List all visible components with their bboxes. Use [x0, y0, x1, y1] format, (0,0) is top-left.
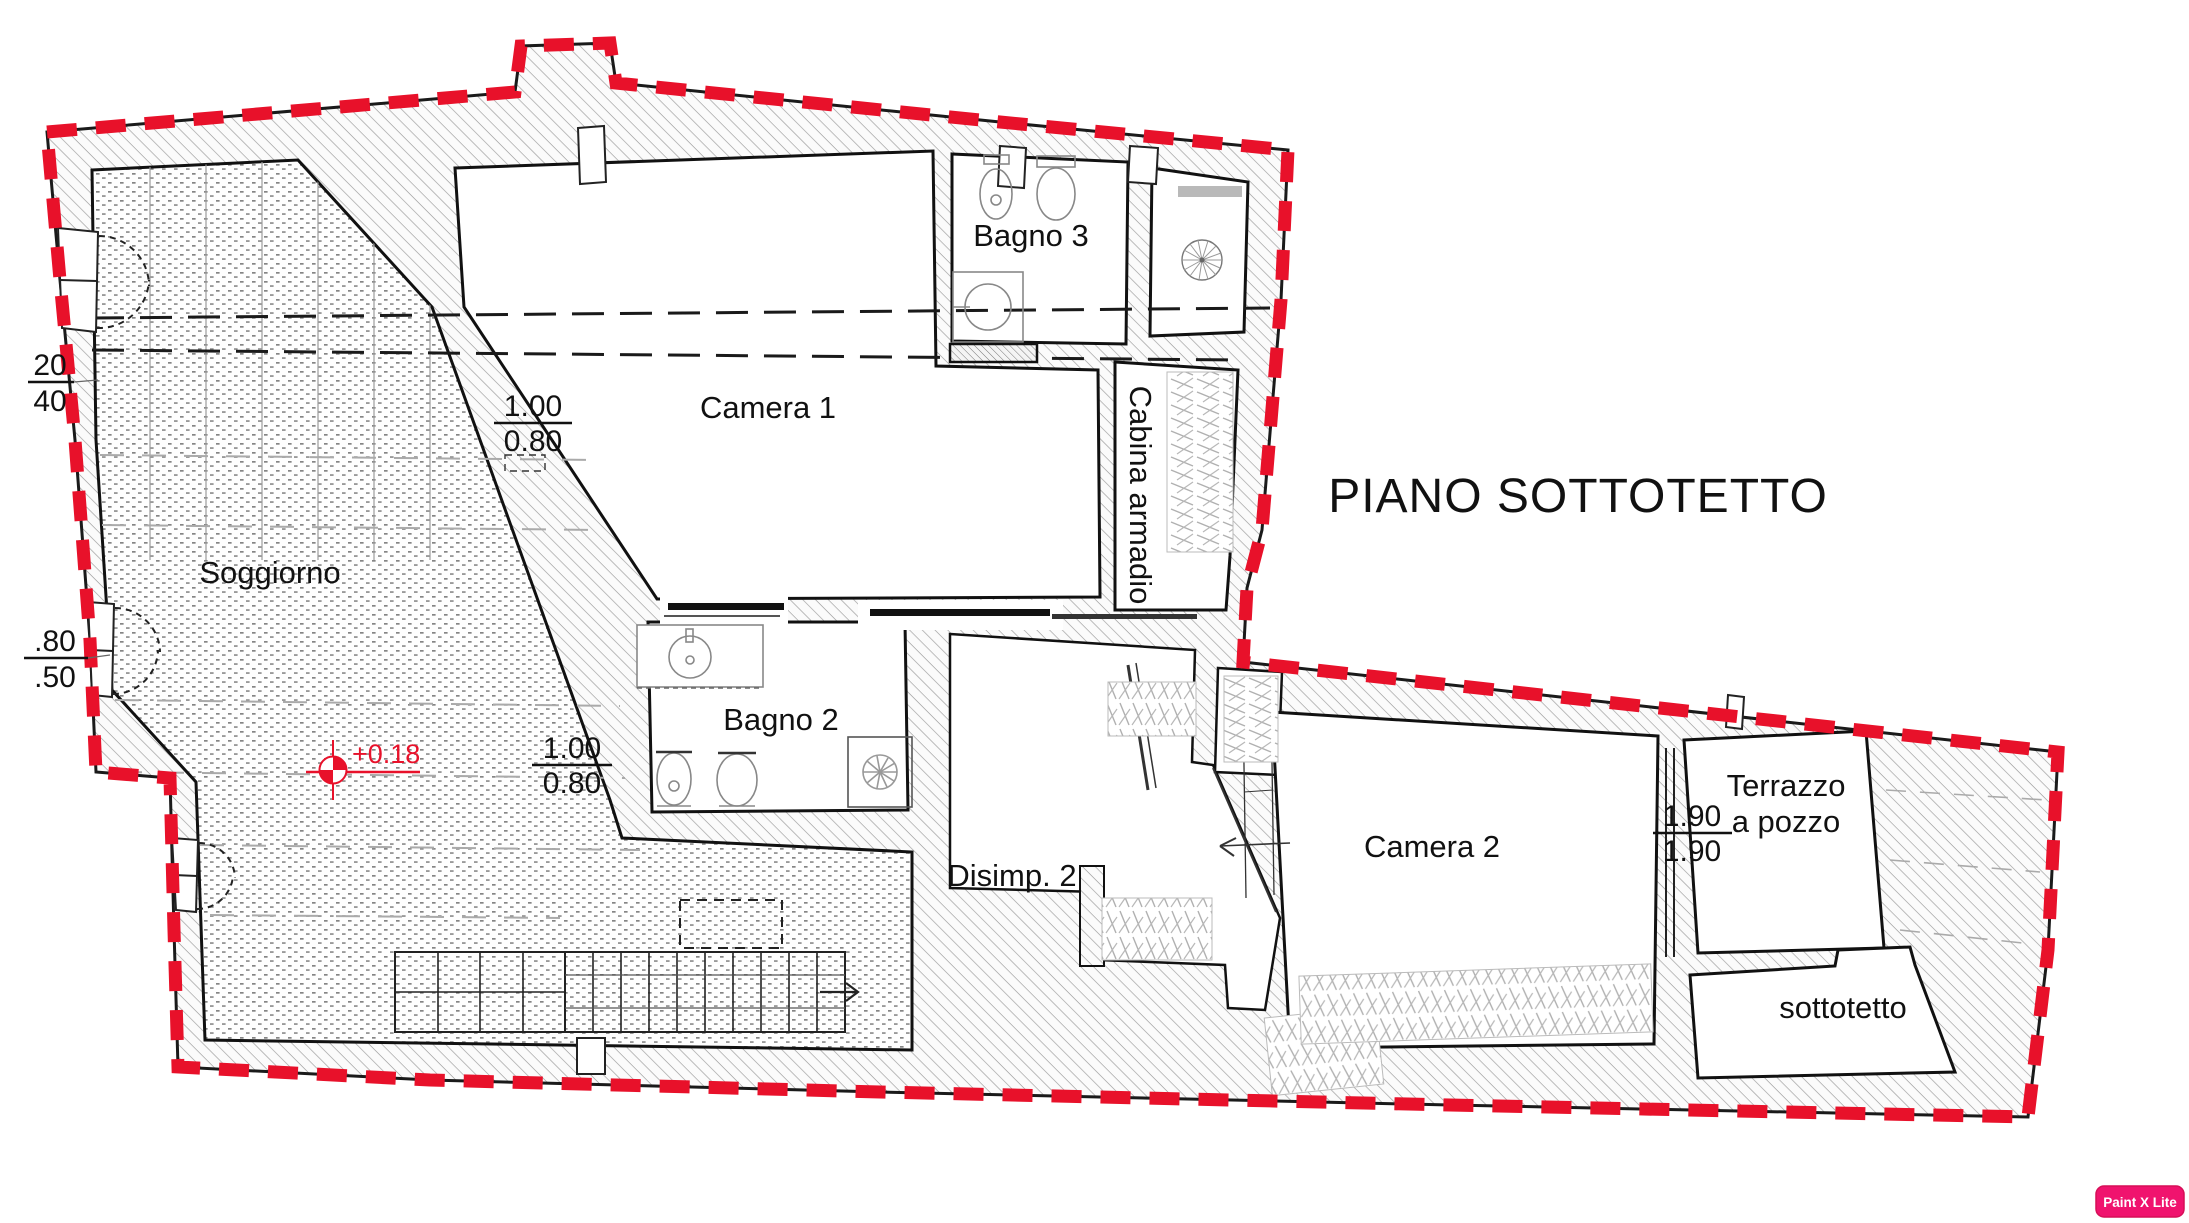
dim-num: 1.00	[504, 390, 562, 423]
page-title: PIANO SOTTOTETTO	[1328, 470, 1828, 523]
dim-den: .50	[34, 661, 76, 694]
watermark-badge: Paint X Lite	[2096, 1186, 2184, 1217]
watermark-text: Paint X Lite	[2103, 1195, 2177, 1210]
dimension-bagno2-opening: 1.00 0.80	[532, 732, 612, 800]
wardrobe-camera2-south	[1299, 964, 1653, 1044]
floor-plan-canvas: +0.18 20 40 .80 .50 1.00 0.80 1.00 0.80 …	[0, 0, 2189, 1223]
sliding-door-camera1	[660, 594, 788, 625]
room-label-camera2: Camera 2	[1364, 829, 1500, 864]
level-value: +0.18	[352, 739, 420, 769]
wardrobe-left	[1108, 682, 1196, 736]
dim-num: .80	[34, 625, 76, 658]
dim-den: 0.80	[543, 767, 601, 800]
wardrobe-cabina	[1167, 372, 1233, 552]
dim-num: 1.00	[543, 732, 601, 765]
room-label-soggiorno: Soggiorno	[199, 555, 340, 590]
chimney-slot	[578, 126, 606, 184]
floor-plan-page: +0.18 20 40 .80 .50 1.00 0.80 1.00 0.80 …	[0, 0, 2189, 1223]
sink-symbol	[637, 625, 763, 688]
room-label-bagno3: Bagno 3	[973, 218, 1089, 253]
wardrobe-disimp	[1102, 898, 1212, 960]
wardrobe-nook	[1224, 676, 1278, 762]
room-label-sottotetto: sottotetto	[1779, 990, 1907, 1025]
bagno3-top-slot	[998, 146, 1026, 188]
dim-den: 0.80	[504, 425, 562, 458]
stairwell-door-slot	[1128, 146, 1158, 184]
room-label-terrazzo-line1: Terrazzo	[1727, 768, 1846, 803]
dimension-terrazzo-window: 1.90 1.90	[1653, 800, 1732, 868]
room-label-terrazzo-line2: a pozzo	[1732, 804, 1841, 839]
dim-den: 40	[33, 385, 66, 418]
bagno3-sill	[950, 344, 1037, 362]
room-label-bagno2: Bagno 2	[723, 702, 839, 737]
wall-patch	[1080, 866, 1104, 966]
dim-num: 20	[33, 349, 66, 382]
room-label-cabina-armadio: Cabina armadio	[1123, 386, 1158, 605]
dim-num: 1.90	[1663, 800, 1721, 833]
dim-den: 1.90	[1663, 835, 1721, 868]
room-label-disimp2: Disimp. 2	[947, 858, 1076, 893]
room-label-camera1: Camera 1	[700, 390, 836, 425]
bottom-wall-slot	[577, 1038, 605, 1074]
